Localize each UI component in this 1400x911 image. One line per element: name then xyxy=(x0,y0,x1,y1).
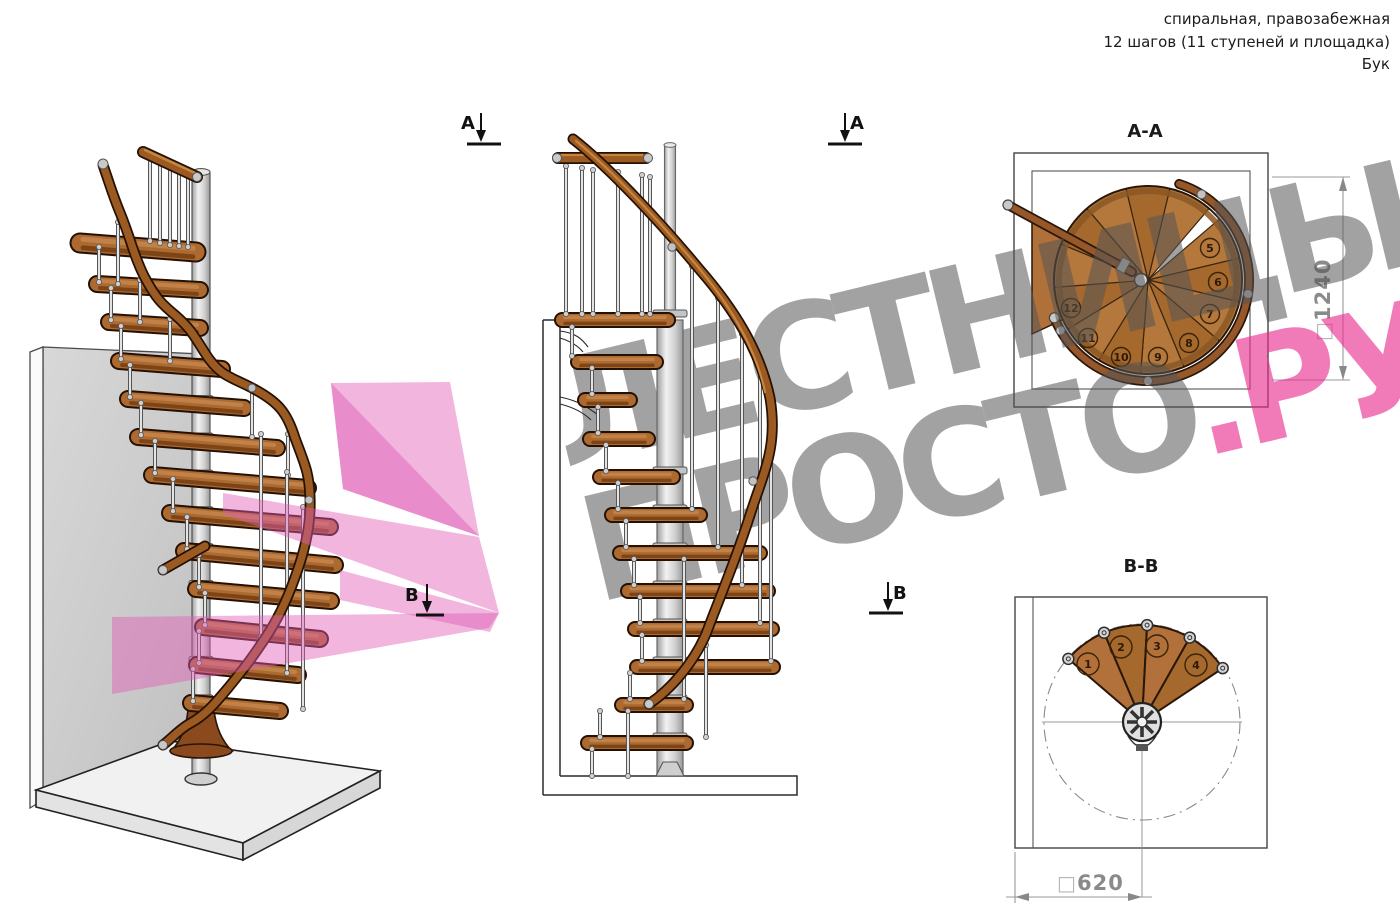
step-count-text: 12 шагов (11 ступеней и площадка) xyxy=(1104,31,1390,54)
svg-text:4: 4 xyxy=(1192,659,1200,672)
svg-text:2: 2 xyxy=(1117,641,1125,654)
dim-value-620: 620 xyxy=(1077,871,1124,895)
plan-top-title: А-А xyxy=(1127,121,1162,142)
elevation-view xyxy=(520,115,950,807)
title-block: спиральная, правозабежная 12 шагов (11 с… xyxy=(1104,8,1390,76)
rail-end-cap xyxy=(1003,200,1013,210)
svg-text:3: 3 xyxy=(1153,640,1161,653)
svg-text:1: 1 xyxy=(1084,658,1092,671)
section-marker-b-left: В xyxy=(400,578,460,626)
plan-bottom-title: В-В xyxy=(1124,556,1159,577)
marker-letter: В xyxy=(405,585,419,606)
isometric-view xyxy=(20,130,465,865)
drawing-sheet: спиральная, правозабежная 12 шагов (11 с… xyxy=(0,0,1400,911)
dim-square-symbol: □ xyxy=(1057,871,1076,895)
section-marker-a-right: А xyxy=(820,105,880,153)
marker-letter: А xyxy=(461,113,475,134)
floor-flange xyxy=(185,773,217,785)
section-view-b-b: В-В 1234 □ 620 xyxy=(985,548,1400,911)
stair-type-text: спиральная, правозабежная xyxy=(1104,8,1390,31)
marker-letter: В xyxy=(893,583,907,604)
marker-letter: А xyxy=(850,113,864,134)
section-marker-a-left: А xyxy=(455,105,515,153)
material-text: Бук xyxy=(1104,53,1390,76)
section-marker-b-right: В xyxy=(860,576,920,624)
